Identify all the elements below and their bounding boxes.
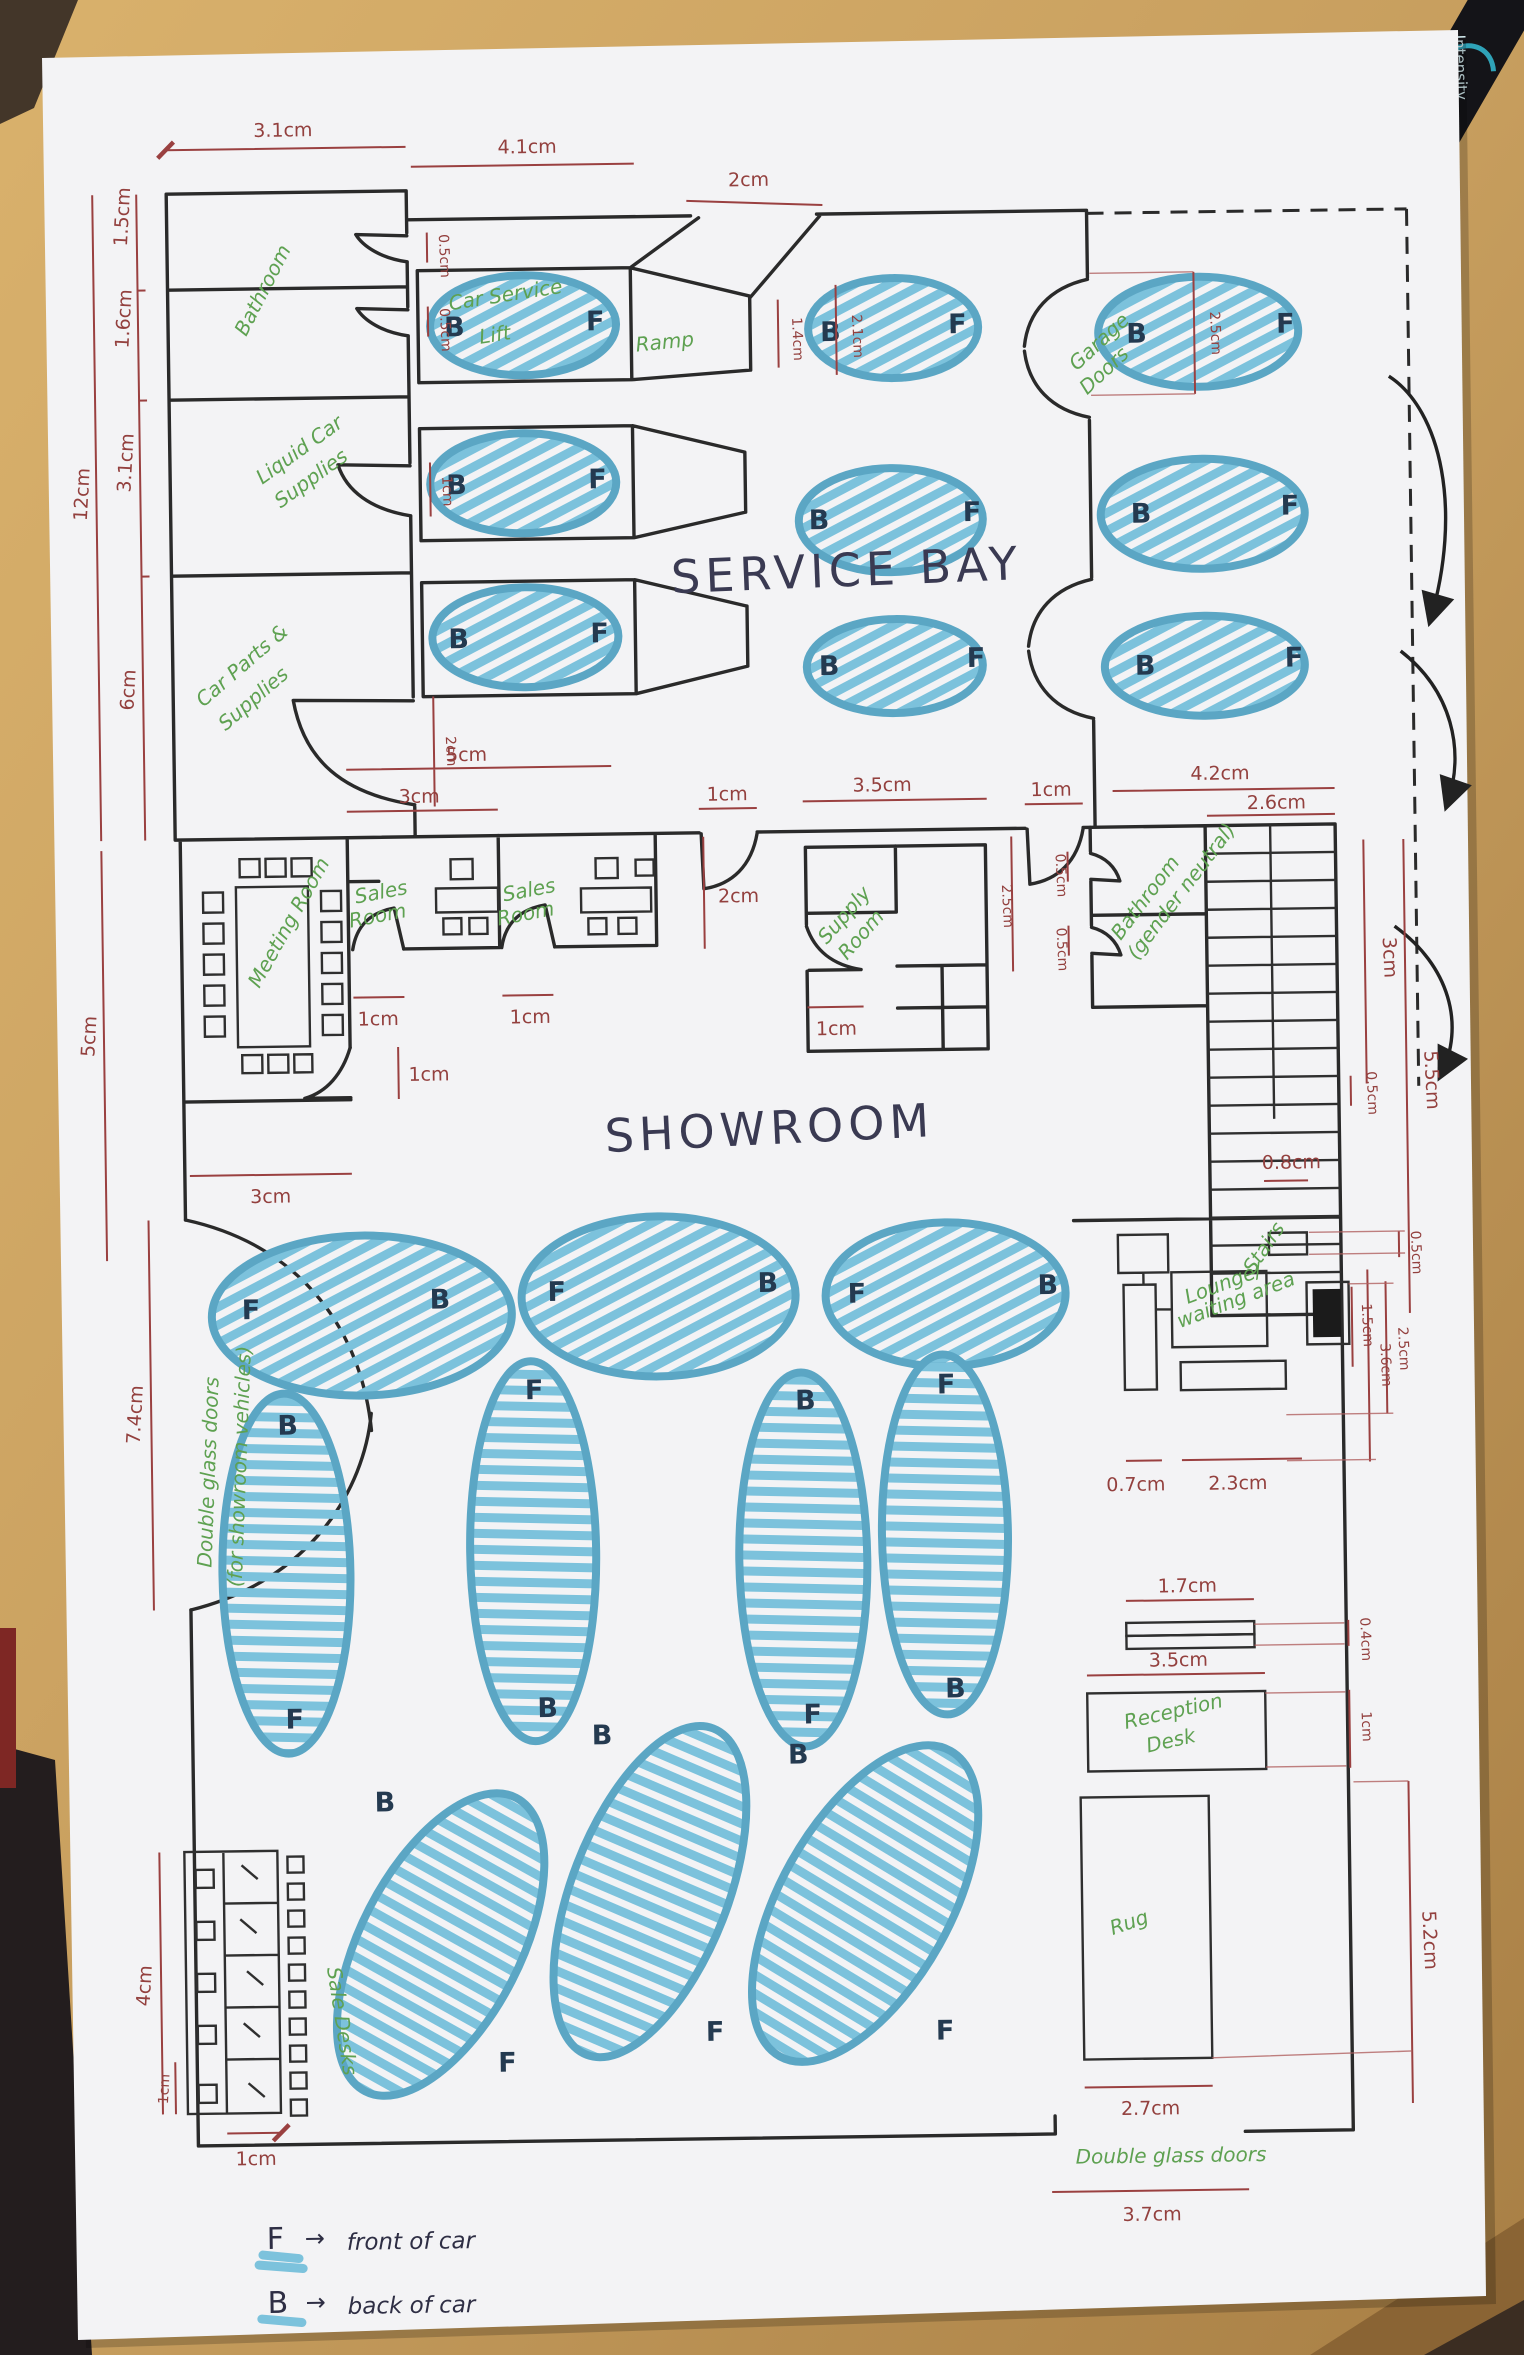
dimension-label: 1cm: [1030, 779, 1071, 802]
dimension-label: 5cm: [77, 1015, 101, 1057]
legend-back-text: back of car: [348, 2292, 478, 2320]
car-back-label: B: [757, 1268, 778, 1299]
car-back-label: B: [809, 505, 830, 536]
dimension-label: 2.5cm: [998, 884, 1016, 928]
car-back-label: B: [788, 1739, 809, 1770]
floor-plan-drawing: Intensity: [0, 0, 1524, 2355]
dimension-label: 0.5cm: [435, 234, 453, 278]
car-front-label: F: [590, 618, 609, 649]
dimension-label: 1.7cm: [1158, 1575, 1217, 1598]
legend-front-key: F: [267, 2222, 285, 2257]
car-front-label: F: [1280, 490, 1299, 521]
car-oval: [737, 1372, 870, 1748]
car-back-label: B: [1037, 1270, 1058, 1301]
dimension-label: 6cm: [116, 669, 140, 711]
legend-arrow-icon: →: [305, 2224, 325, 2252]
car-front-label: F: [1285, 642, 1304, 673]
photo-of-floor-plan: Intensity: [0, 0, 1524, 2355]
dimension-label: 0.4cm: [1356, 1617, 1374, 1661]
car-front-label: F: [586, 306, 605, 337]
car-back-label: B: [374, 1787, 395, 1818]
car-back-label: B: [1131, 498, 1152, 529]
dimension-label: 1.5cm: [1358, 1303, 1376, 1347]
car-back-label: B: [820, 317, 841, 348]
dimension-label: 0.5cm: [1407, 1230, 1425, 1274]
dimension-label: 1cm: [816, 1018, 857, 1041]
dimension-label: 1cm: [235, 2148, 276, 2171]
car-front-label: F: [962, 497, 981, 528]
dimension-label: 1cm: [156, 2073, 174, 2104]
car-front-label: F: [936, 2015, 955, 2046]
car-back-label: B: [1135, 650, 1156, 681]
dimension-label: 1cm: [1357, 1711, 1374, 1742]
car-front-label: F: [547, 1277, 566, 1308]
dimension-label: 0.5cm: [1363, 1071, 1381, 1115]
car-front-label: F: [1276, 308, 1295, 339]
dimension-label: 3cm: [250, 1186, 291, 1209]
legend-arrow-icon: →: [305, 2288, 325, 2316]
car-back-label: B: [819, 651, 840, 682]
dimension-label: 2.5cm: [1394, 1327, 1412, 1371]
dimension-label: 2.7cm: [1121, 2097, 1180, 2120]
dimension-label: 1cm: [408, 1063, 449, 1086]
car-front-label: F: [588, 464, 607, 495]
car-oval: [879, 1354, 1010, 1716]
dimension-label: 0.5cm: [1053, 927, 1071, 971]
dimension-label: 7.4cm: [123, 1385, 148, 1445]
dimension-label: 3.6cm: [1376, 1343, 1394, 1387]
car-front-label: F: [525, 1375, 544, 1406]
dimension-label: 2.1cm: [848, 314, 866, 358]
dimension-label: 3.5cm: [852, 774, 911, 797]
room-label-lift: Lift: [477, 320, 513, 349]
car-front-label: F: [967, 643, 986, 674]
car-back-label: B: [429, 1284, 450, 1315]
dimension-label: 5.5cm: [1419, 1050, 1444, 1110]
dimension-label: 3.1cm: [253, 119, 312, 142]
car-back-label: B: [277, 1410, 298, 1441]
car-front-label: F: [706, 2017, 725, 2048]
dimension-label: 4.1cm: [497, 136, 556, 159]
dimension-label: 2.5cm: [1206, 311, 1224, 355]
legend-back-key: B: [267, 2286, 288, 2321]
dimension-label: 2.6cm: [1247, 791, 1306, 814]
dimension-label: 1.6cm: [111, 289, 136, 349]
dimension-label: 1.5cm: [110, 187, 135, 247]
car-front-label: F: [498, 2047, 517, 2078]
dimension-label: 2cm: [718, 885, 759, 908]
dimension-label: 1cm: [706, 783, 747, 806]
dimension-label: 3.7cm: [1122, 2203, 1181, 2226]
car-back-label: B: [592, 1720, 613, 1751]
dimension-label: 12cm: [70, 467, 95, 521]
dimension-label: 1cm: [438, 476, 455, 507]
dimension-label: 1cm: [358, 1008, 399, 1031]
red-object-left-edge: [0, 1628, 16, 1788]
dimension-label: 3.5cm: [1149, 1649, 1208, 1672]
car-front-label: F: [948, 309, 967, 340]
room-label-double-glass-doors-bottom: Double glass doors: [1075, 2142, 1266, 2169]
dimension-label: 0.5cm: [1051, 853, 1069, 897]
dimension-label: 3cm: [1378, 936, 1402, 978]
car-front-label: F: [242, 1295, 261, 1326]
car-back-label: B: [795, 1385, 816, 1416]
dimension-label: 2.3cm: [1208, 1472, 1267, 1495]
dimension-label: 4cm: [133, 1965, 157, 2007]
car-back-label: B: [448, 624, 469, 655]
dimension-label: 1cm: [510, 1006, 551, 1029]
dimension-label: 4.2cm: [1190, 762, 1249, 785]
car-back-label: B: [945, 1673, 966, 1704]
car-front-label: F: [285, 1704, 304, 1735]
legend-front-text: front of car: [347, 2228, 477, 2256]
dimension-label: 1.4cm: [788, 317, 806, 361]
dimension-label: 0.8cm: [1262, 1151, 1321, 1174]
dimension-label: 5cm: [446, 744, 487, 767]
car-back-label: B: [537, 1693, 558, 1724]
dimension-label: 0.7cm: [1106, 1473, 1165, 1496]
car-front-label: F: [937, 1369, 956, 1400]
dimension-label: 5.2cm: [1417, 1910, 1442, 1970]
car-front-label: F: [803, 1699, 822, 1730]
dimension-label: 3cm: [398, 785, 439, 808]
car-oval: [468, 1360, 599, 1742]
car-front-label: F: [847, 1279, 866, 1310]
dimension-label: 3.1cm: [113, 433, 138, 493]
dimension-label: 2cm: [728, 169, 769, 192]
tv-screen: [1313, 1289, 1342, 1337]
